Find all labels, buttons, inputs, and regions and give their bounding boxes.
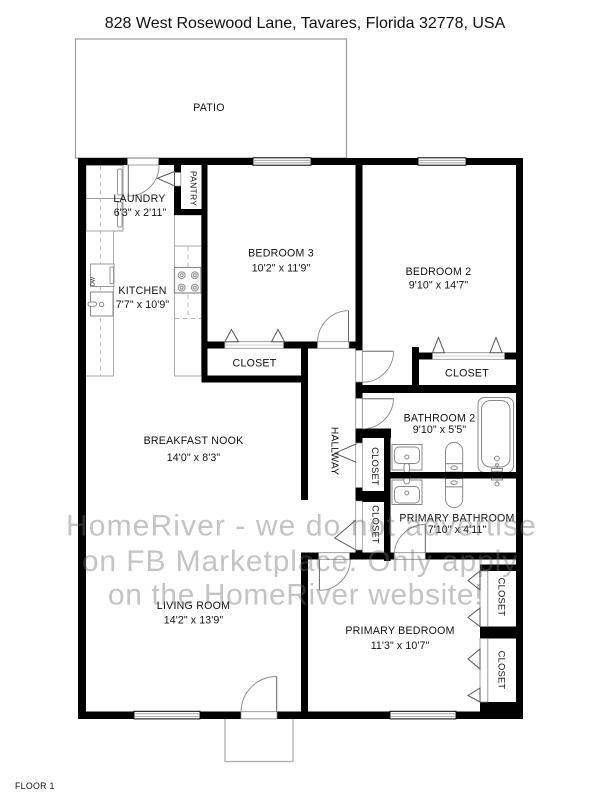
svg-text:828 West Rosewood Lane, Tavare: 828 West Rosewood Lane, Tavares, Florida… xyxy=(105,15,506,32)
svg-text:7'7" x 10'9": 7'7" x 10'9" xyxy=(116,299,170,311)
svg-text:BATHROOM 2: BATHROOM 2 xyxy=(404,413,476,425)
svg-text:CLOSET: CLOSET xyxy=(370,447,381,486)
svg-text:10'2" x 11'9": 10'2" x 11'9" xyxy=(252,263,311,275)
svg-text:CLOSET: CLOSET xyxy=(445,368,489,380)
svg-text:DW: DW xyxy=(91,276,97,286)
svg-text:HomeRiver - we do not advertis: HomeRiver - we do not advertise xyxy=(66,510,537,543)
svg-text:11'3" x 10'7": 11'3" x 10'7" xyxy=(371,640,430,652)
svg-text:BEDROOM 2: BEDROOM 2 xyxy=(406,266,472,278)
svg-text:FLOOR 1: FLOOR 1 xyxy=(15,781,55,791)
svg-text:CLOSET: CLOSET xyxy=(497,578,508,617)
svg-text:CLOSET: CLOSET xyxy=(233,358,277,370)
svg-text:14'0" x 8'3": 14'0" x 8'3" xyxy=(167,452,221,464)
svg-text:PRIMARY BEDROOM: PRIMARY BEDROOM xyxy=(345,625,454,637)
svg-text:BREAKFAST NOOK: BREAKFAST NOOK xyxy=(144,435,244,447)
svg-text:HALLWAY: HALLWAY xyxy=(329,427,340,475)
svg-text:PANTRY: PANTRY xyxy=(189,171,199,206)
svg-text:CLOSET: CLOSET xyxy=(497,651,508,690)
svg-text:6'3" x 2'11": 6'3" x 2'11" xyxy=(114,207,167,219)
svg-text:on FB Marketplace. Only apply: on FB Marketplace. Only apply xyxy=(82,545,518,578)
svg-text:on the HomeRiver website!: on the HomeRiver website! xyxy=(108,579,483,612)
svg-text:9'10" x 14'7": 9'10" x 14'7" xyxy=(409,280,469,292)
svg-text:KITCHEN: KITCHEN xyxy=(118,285,166,297)
svg-text:9'10" x 5'5": 9'10" x 5'5" xyxy=(413,424,467,436)
svg-text:PATIO: PATIO xyxy=(193,102,224,114)
svg-text:LAUNDRY: LAUNDRY xyxy=(113,193,165,205)
svg-text:14'2" x 13'9": 14'2" x 13'9" xyxy=(164,615,224,627)
svg-text:BEDROOM 3: BEDROOM 3 xyxy=(248,248,314,260)
